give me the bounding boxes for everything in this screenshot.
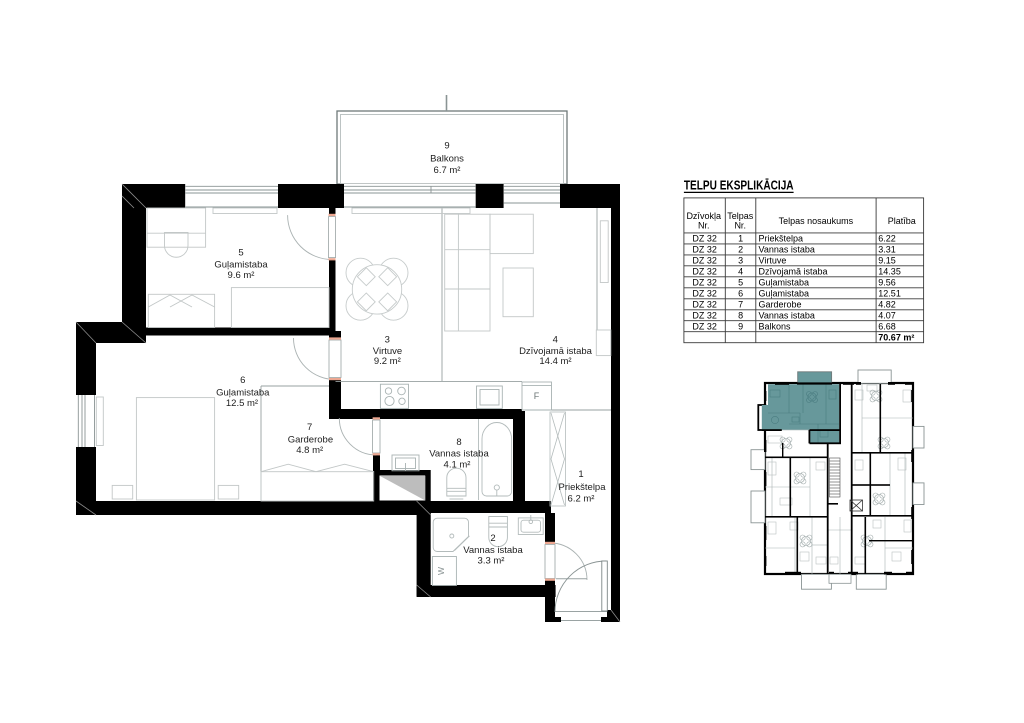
svg-text:DZ 32: DZ 32 xyxy=(692,245,717,255)
svg-text:Virtuve: Virtuve xyxy=(759,256,787,266)
svg-text:14.35: 14.35 xyxy=(878,267,901,277)
svg-text:9: 9 xyxy=(444,141,449,152)
svg-text:4.07: 4.07 xyxy=(878,311,896,321)
svg-text:12.5 m²: 12.5 m² xyxy=(226,398,258,409)
svg-text:2: 2 xyxy=(738,245,743,255)
svg-text:Nr.: Nr. xyxy=(698,221,710,231)
svg-text:3: 3 xyxy=(385,334,390,345)
svg-text:W: W xyxy=(436,567,446,575)
svg-text:6: 6 xyxy=(240,375,245,386)
svg-text:Nr.: Nr. xyxy=(734,221,746,231)
svg-text:6.7 m²: 6.7 m² xyxy=(434,165,461,176)
svg-text:Vannas istaba: Vannas istaba xyxy=(463,545,523,556)
svg-text:8: 8 xyxy=(738,311,743,321)
svg-text:3.3 m²: 3.3 m² xyxy=(478,555,505,566)
svg-text:4.82: 4.82 xyxy=(878,300,896,310)
svg-text:DZ 32: DZ 32 xyxy=(692,234,717,244)
svg-text:9: 9 xyxy=(738,321,743,331)
svg-text:3: 3 xyxy=(738,256,743,266)
svg-text:Vannas istaba: Vannas istaba xyxy=(759,311,815,321)
svg-text:Balkons: Balkons xyxy=(759,321,792,331)
svg-text:2: 2 xyxy=(490,533,495,544)
svg-text:DZ 32: DZ 32 xyxy=(692,311,717,321)
svg-text:F: F xyxy=(534,391,540,401)
svg-text:Vannas istaba: Vannas istaba xyxy=(429,448,489,459)
svg-text:8: 8 xyxy=(456,437,461,448)
svg-text:DZ 32: DZ 32 xyxy=(692,321,717,331)
svg-text:Dzīvojamā istaba: Dzīvojamā istaba xyxy=(759,267,828,277)
svg-text:Guļamistaba: Guļamistaba xyxy=(759,278,810,288)
svg-text:Guļamistaba: Guļamistaba xyxy=(214,260,268,271)
svg-text:1: 1 xyxy=(578,469,583,480)
svg-text:70.67 m²: 70.67 m² xyxy=(878,332,914,342)
svg-text:Vannas istaba: Vannas istaba xyxy=(759,245,815,255)
svg-text:14.4 m²: 14.4 m² xyxy=(539,356,571,367)
svg-text:Priekštelpa: Priekštelpa xyxy=(759,234,804,244)
svg-text:6.22: 6.22 xyxy=(878,234,896,244)
svg-text:7: 7 xyxy=(307,422,312,433)
svg-text:DZ 32: DZ 32 xyxy=(692,300,717,310)
svg-text:4.8 m²: 4.8 m² xyxy=(296,445,323,456)
svg-text:DZ 32: DZ 32 xyxy=(692,256,717,266)
svg-text:1: 1 xyxy=(738,234,743,244)
svg-text:4: 4 xyxy=(553,334,558,345)
svg-text:Guļamistaba: Guļamistaba xyxy=(759,289,810,299)
svg-text:TELPU EKSPLIKĀCIJA: TELPU EKSPLIKĀCIJA xyxy=(684,179,794,193)
svg-text:Balkons: Balkons xyxy=(430,154,464,165)
svg-text:Garderobe: Garderobe xyxy=(759,300,802,310)
svg-text:DZ 32: DZ 32 xyxy=(692,289,717,299)
svg-text:12.51: 12.51 xyxy=(878,289,901,299)
svg-text:Priekštelpa: Priekštelpa xyxy=(559,482,607,493)
svg-text:9.56: 9.56 xyxy=(878,278,896,288)
svg-text:3.31: 3.31 xyxy=(878,245,896,255)
svg-text:5: 5 xyxy=(238,248,243,259)
svg-text:Platība: Platība xyxy=(888,216,916,226)
svg-text:Telpas: Telpas xyxy=(727,211,754,221)
svg-text:DZ 32: DZ 32 xyxy=(692,267,717,277)
svg-text:Dzīvokļa: Dzīvokļa xyxy=(686,211,721,221)
svg-text:6.2 m²: 6.2 m² xyxy=(568,493,595,504)
svg-text:4.1 m²: 4.1 m² xyxy=(444,460,471,471)
svg-text:Telpas nosaukums: Telpas nosaukums xyxy=(779,216,854,226)
svg-text:7: 7 xyxy=(738,300,743,310)
svg-text:6.68: 6.68 xyxy=(878,321,896,331)
svg-text:5: 5 xyxy=(738,278,743,288)
svg-text:9.6 m²: 9.6 m² xyxy=(228,270,255,281)
svg-text:4: 4 xyxy=(738,267,743,277)
svg-text:6: 6 xyxy=(738,289,743,299)
svg-text:DZ 32: DZ 32 xyxy=(692,278,717,288)
svg-text:9.2 m²: 9.2 m² xyxy=(374,356,401,367)
svg-text:9.15: 9.15 xyxy=(878,256,896,266)
